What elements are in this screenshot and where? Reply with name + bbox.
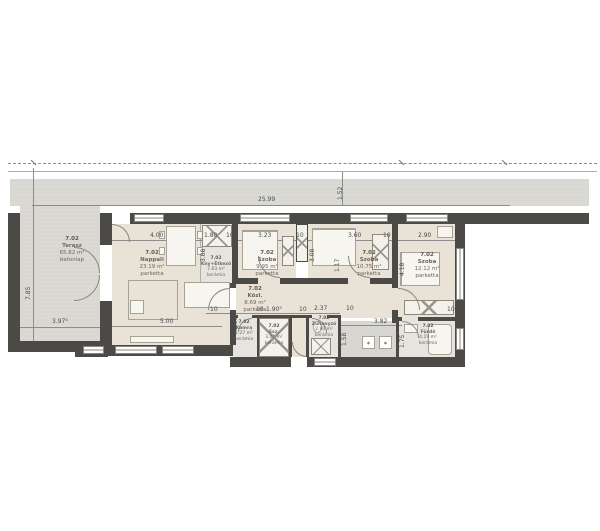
room-label-terasz: 7.02 Terasz 65.82 m² betonlap [42, 236, 102, 264]
room-area: 9.95 m² [244, 264, 290, 271]
room-area: 65.82 m² [42, 250, 102, 257]
dim-nappali-width: 4.00 [150, 233, 163, 239]
washing-machine [362, 336, 375, 349]
dim-szoba2-width: 3.60 [348, 233, 361, 239]
floor-plan: 7.02 Terasz 65.82 m² betonlap 7.02 Nappa… [0, 0, 600, 531]
room-floor: kerámia [260, 341, 288, 347]
door-opening [392, 288, 398, 310]
dim-zuh-depth: 1.58 [342, 333, 348, 346]
room-floor: betonlap [42, 257, 102, 264]
room-number: 7.02 [346, 250, 392, 257]
dim-band-depth: 1.52 [338, 187, 344, 200]
dim-wall-45: 45 [342, 214, 348, 222]
washing-machine [379, 336, 392, 349]
window [456, 328, 464, 350]
dim-szoba2-depth: 3.08 [310, 249, 316, 262]
dim-line-500 [112, 326, 222, 327]
room-floor: parketta [126, 271, 178, 278]
window [115, 346, 157, 354]
dim-szoba3-width: 2.90 [418, 233, 431, 239]
room-floor: kerámia [306, 333, 342, 339]
room-floor: parketta [404, 273, 450, 280]
dim-wall-10: 10 [210, 307, 218, 313]
walkway-band [10, 179, 589, 206]
room-area: 12.12 m² [404, 266, 450, 273]
room-number: 7.02 [232, 286, 278, 293]
entrance-door-opening [291, 357, 307, 367]
window [406, 214, 448, 222]
room-floor: kerámia [195, 273, 237, 279]
room-label-furdo: 7.02 Fürdő 4.19 m² kerámia [406, 324, 450, 347]
window [162, 346, 194, 354]
room-label-esz: 7.02 Esz. 3.01 m² kerámia [260, 324, 288, 347]
dim-wall-10: 10 [296, 233, 304, 239]
dim-line-total [32, 205, 510, 206]
room-number: 7.02 [42, 236, 102, 243]
door-opening [258, 278, 280, 284]
room-label-szoba2: 7.02 Szoba 10.75 m² parketta [346, 250, 392, 278]
dim-wall-10: 10 [346, 306, 354, 312]
dim-zuh-width: 2.37 [314, 306, 327, 312]
room-name: Szoba [244, 257, 290, 264]
room-name: Szoba [346, 257, 392, 264]
room-floor: kerámia [231, 337, 257, 343]
dim-wall-10: 10 [256, 307, 264, 313]
dim-wall-10: 10 [447, 307, 455, 313]
dim-hall-depth: 1.17 [335, 259, 341, 272]
dim-corridor-width: 3.82 [374, 319, 387, 325]
dim-kny-depth: 3.08 [201, 249, 207, 262]
window [134, 214, 164, 222]
room-name: Terasz [42, 243, 102, 250]
wall-south-wing [230, 357, 462, 367]
wall-left-terrace [8, 213, 20, 352]
room-area: 23.19 m² [126, 264, 178, 271]
dim-total-width: 25.99 [258, 197, 275, 203]
dim-terrace-depth: 7.85 [26, 287, 32, 300]
room-label-zuhanyzo: 7.02 Zuhanyzó 2.90 m² kerámia [306, 316, 342, 339]
room-name: Nappali [126, 257, 178, 264]
dim-esz-width: 1.90⁵ [266, 307, 282, 313]
door-opening [402, 317, 418, 321]
dim-wall-10: 10 [226, 233, 234, 239]
wall-esz-entry [289, 318, 292, 357]
window [83, 346, 104, 354]
boundary-solid-line [8, 171, 597, 172]
dim-nappali-depth: 2.86 [233, 317, 239, 330]
shower-tray [311, 338, 331, 355]
wall-kamra-esz [257, 318, 259, 357]
room-name: Közl. [232, 293, 278, 300]
dim-szoba1-width: 3.23 [258, 233, 271, 239]
dim-wall-10: 10 [299, 307, 307, 313]
dim-kny-width: 1.80 [204, 233, 217, 239]
dim-terrace-width: 3.97⁵ [52, 319, 68, 325]
dim-wall-10: 10 [383, 233, 391, 239]
room-label-nappali: 7.02 Nappali 23.19 m² parketta [126, 250, 178, 278]
room-number: 7.02 [244, 250, 290, 257]
door-opening [112, 213, 130, 224]
room-label-szoba3: 7.02 Szoba 12.12 m² parketta [404, 252, 450, 280]
room-area: 10.75 m² [346, 264, 392, 271]
room-floor: parketta [244, 271, 290, 278]
dim-nappali-bottom: 5.00 [160, 319, 173, 325]
room-label-szoba1: 7.02 Szoba 9.95 m² parketta [244, 250, 290, 278]
window [456, 248, 464, 300]
armchair [130, 300, 144, 314]
dim-corridor-depth: 1.75 [400, 335, 406, 348]
boundary-dashed-line [8, 163, 597, 164]
dim-line-left-v [33, 168, 34, 341]
room-number: 7.02 [126, 250, 178, 257]
dim-line-397 [20, 327, 100, 328]
room-floor: parketta [346, 271, 392, 278]
room-name: Szoba [404, 259, 450, 266]
dim-szoba3-depth: 4.18 [400, 263, 406, 276]
room-number: 7.02 [404, 252, 450, 259]
window [240, 214, 290, 222]
shaft-hatch [296, 224, 308, 262]
tv-bench [130, 336, 174, 343]
room-floor: kerámia [406, 341, 450, 347]
dim-line-382 [340, 325, 402, 326]
window [314, 358, 336, 366]
door-opening [238, 315, 252, 318]
window [350, 214, 388, 222]
desk [437, 226, 453, 238]
door-opening [348, 278, 370, 284]
